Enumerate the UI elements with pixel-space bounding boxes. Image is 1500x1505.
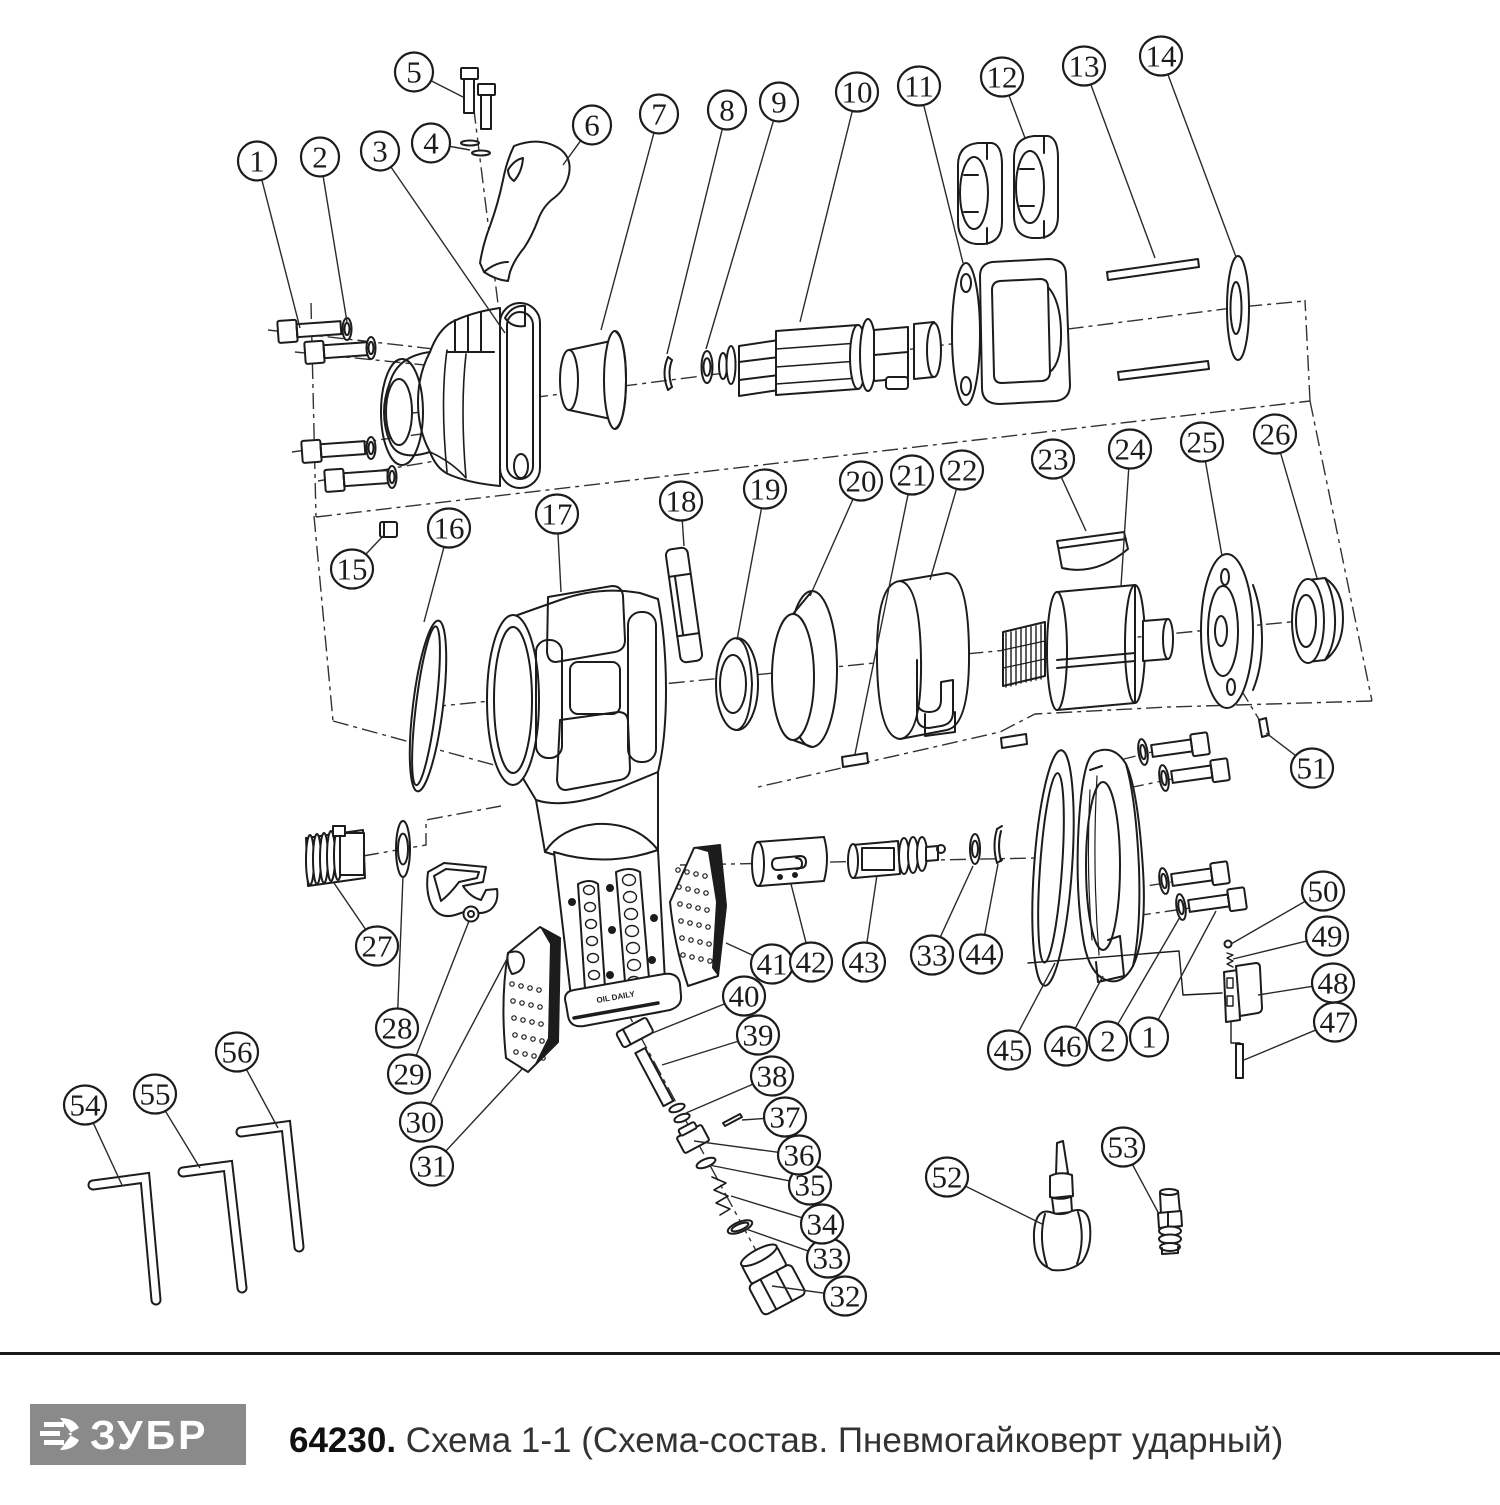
svg-text:5: 5 <box>406 55 422 90</box>
svg-text:50: 50 <box>1308 874 1339 909</box>
svg-text:13: 13 <box>1069 49 1100 84</box>
svg-text:15: 15 <box>337 552 368 587</box>
svg-text:33: 33 <box>813 1241 844 1276</box>
svg-text:43: 43 <box>849 945 880 980</box>
svg-text:4: 4 <box>423 126 439 161</box>
svg-text:55: 55 <box>140 1077 171 1112</box>
svg-text:2: 2 <box>1100 1024 1116 1059</box>
svg-text:33: 33 <box>917 938 948 973</box>
svg-text:10: 10 <box>842 75 873 110</box>
svg-text:30: 30 <box>406 1105 437 1140</box>
svg-text:53: 53 <box>1108 1130 1139 1165</box>
svg-text:36: 36 <box>784 1138 815 1173</box>
svg-text:16: 16 <box>434 511 465 546</box>
svg-text:23: 23 <box>1038 442 1069 477</box>
svg-text:12: 12 <box>987 60 1018 95</box>
svg-text:38: 38 <box>757 1059 788 1094</box>
svg-text:7: 7 <box>651 97 667 132</box>
svg-text:54: 54 <box>70 1088 102 1123</box>
svg-text:44: 44 <box>966 937 998 972</box>
svg-text:1: 1 <box>249 144 265 179</box>
svg-text:47: 47 <box>1320 1005 1351 1040</box>
svg-text:11: 11 <box>904 69 934 104</box>
svg-text:24: 24 <box>1115 432 1147 467</box>
svg-text:37: 37 <box>770 1100 801 1135</box>
svg-text:31: 31 <box>417 1149 448 1184</box>
svg-text:6: 6 <box>584 108 600 143</box>
svg-text:34: 34 <box>807 1207 839 1242</box>
svg-text:18: 18 <box>666 484 697 519</box>
svg-text:28: 28 <box>382 1011 413 1046</box>
svg-text:48: 48 <box>1318 966 1349 1001</box>
svg-text:19: 19 <box>750 472 781 507</box>
svg-text:41: 41 <box>757 947 788 982</box>
svg-text:52: 52 <box>932 1160 963 1195</box>
svg-text:21: 21 <box>897 458 928 493</box>
svg-text:51: 51 <box>1297 751 1328 786</box>
svg-text:39: 39 <box>743 1018 774 1053</box>
svg-text:49: 49 <box>1312 919 1343 954</box>
svg-text:ЗУБР: ЗУБР <box>90 1412 208 1458</box>
svg-text:26: 26 <box>1260 417 1291 452</box>
svg-text:25: 25 <box>1187 425 1218 460</box>
svg-text:32: 32 <box>830 1279 861 1314</box>
svg-text:22: 22 <box>947 453 978 488</box>
svg-text:2: 2 <box>312 140 328 175</box>
svg-text:1: 1 <box>1141 1020 1157 1055</box>
svg-text:27: 27 <box>362 929 393 964</box>
svg-text:17: 17 <box>542 497 573 532</box>
svg-text:45: 45 <box>994 1033 1025 1068</box>
svg-text:29: 29 <box>394 1057 425 1092</box>
svg-text:42: 42 <box>796 945 827 980</box>
svg-text:64230. Схема 1-1 (Схема-состав: 64230. Схема 1-1 (Схема-состав. Пневмога… <box>289 1421 1283 1460</box>
svg-text:9: 9 <box>771 85 787 120</box>
svg-text:46: 46 <box>1051 1029 1082 1064</box>
svg-text:8: 8 <box>719 93 735 128</box>
svg-text:56: 56 <box>222 1035 253 1070</box>
svg-text:3: 3 <box>372 134 388 169</box>
svg-text:20: 20 <box>846 464 877 499</box>
svg-text:40: 40 <box>729 979 760 1014</box>
svg-text:14: 14 <box>1146 39 1178 74</box>
